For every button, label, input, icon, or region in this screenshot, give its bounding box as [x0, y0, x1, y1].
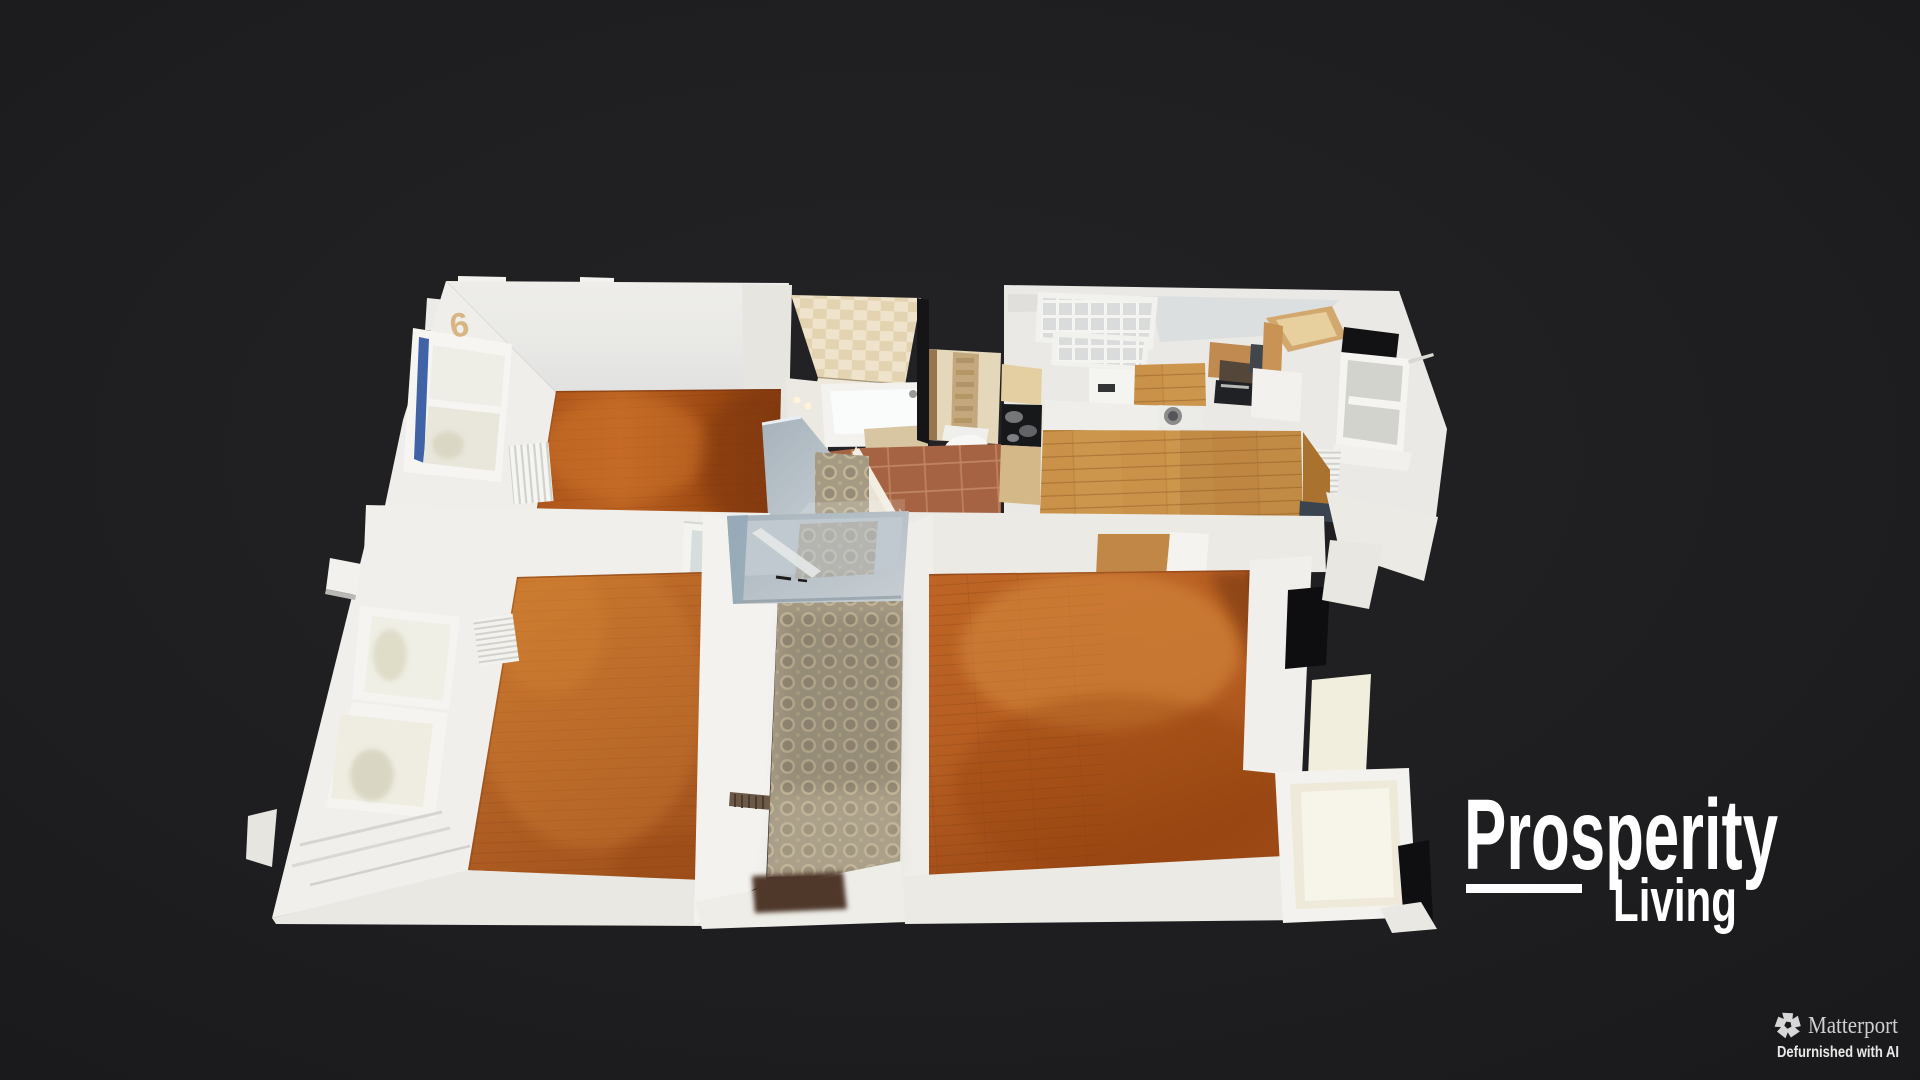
svg-text:Defurnished with AI: Defurnished with AI: [1777, 1044, 1899, 1061]
svg-text:Matterport: Matterport: [1808, 1013, 1898, 1039]
svg-text:Living: Living: [1613, 867, 1737, 934]
